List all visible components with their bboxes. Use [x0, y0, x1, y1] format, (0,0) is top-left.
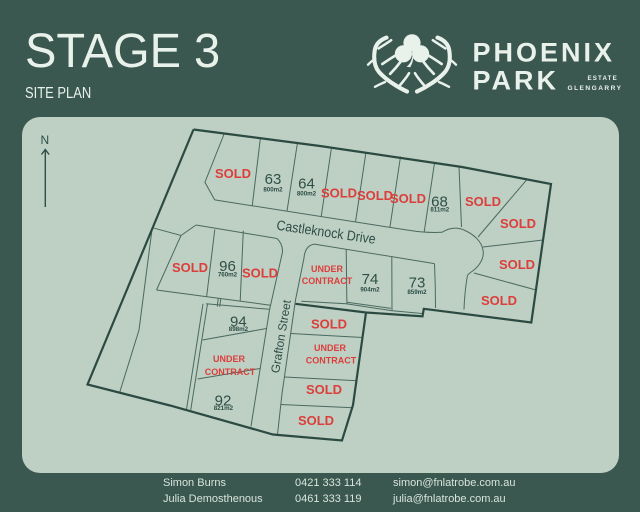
svg-text:SOLD: SOLD [481, 293, 517, 308]
svg-text:SOLD: SOLD [321, 185, 357, 200]
svg-text:SOLD: SOLD [242, 266, 278, 281]
svg-text:SOLD: SOLD [311, 317, 347, 332]
svg-text:CONTRACT: CONTRACT [306, 355, 357, 365]
svg-text:SOLD: SOLD [298, 413, 334, 428]
svg-text:SOLD: SOLD [500, 216, 536, 231]
svg-text:760m2: 760m2 [218, 272, 238, 279]
svg-text:811m2: 811m2 [430, 207, 449, 214]
svg-text:SOLD: SOLD [357, 188, 393, 203]
svg-text:821m2: 821m2 [214, 405, 234, 412]
svg-text:SOLD: SOLD [390, 191, 426, 206]
svg-text:N: N [41, 133, 50, 147]
svg-text:904m2: 904m2 [360, 287, 380, 294]
svg-text:SOLD: SOLD [172, 260, 208, 275]
svg-text:Castleknock Drive: Castleknock Drive [276, 217, 377, 247]
svg-text:800m2: 800m2 [263, 186, 283, 193]
svg-text:PARK: PARK [473, 66, 560, 96]
svg-text:SOLD: SOLD [465, 194, 501, 209]
svg-text:SOLD: SOLD [306, 382, 342, 397]
svg-text:800m2: 800m2 [297, 191, 317, 198]
svg-text:GLENGARRY: GLENGARRY [568, 85, 623, 92]
svg-text:898m2: 898m2 [229, 326, 249, 333]
svg-text:UNDER: UNDER [311, 264, 344, 274]
svg-text:859m2: 859m2 [407, 289, 427, 296]
svg-text:SOLD: SOLD [499, 257, 535, 272]
svg-text:CONTRACT: CONTRACT [302, 276, 353, 286]
svg-text:UNDER: UNDER [213, 354, 246, 364]
svg-text:CONTRACT: CONTRACT [205, 367, 256, 377]
svg-text:SOLD: SOLD [215, 166, 251, 181]
svg-text:UNDER: UNDER [314, 343, 347, 353]
svg-text:PHOENIX: PHOENIX [473, 38, 616, 68]
svg-text:ESTATE: ESTATE [588, 75, 618, 82]
